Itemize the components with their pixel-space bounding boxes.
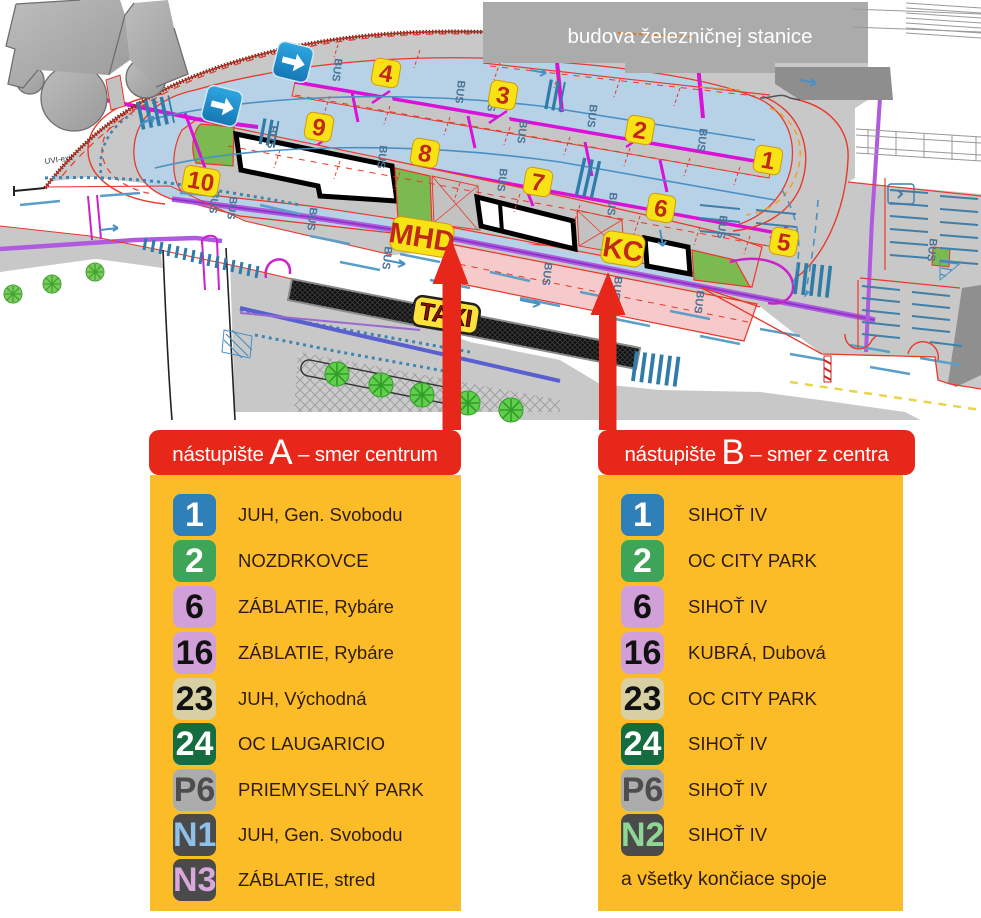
svg-text:10: 10 <box>185 166 216 197</box>
svg-text:budova železničnej stanice: budova železničnej stanice <box>567 25 812 48</box>
svg-text:KC: KC <box>601 231 646 268</box>
